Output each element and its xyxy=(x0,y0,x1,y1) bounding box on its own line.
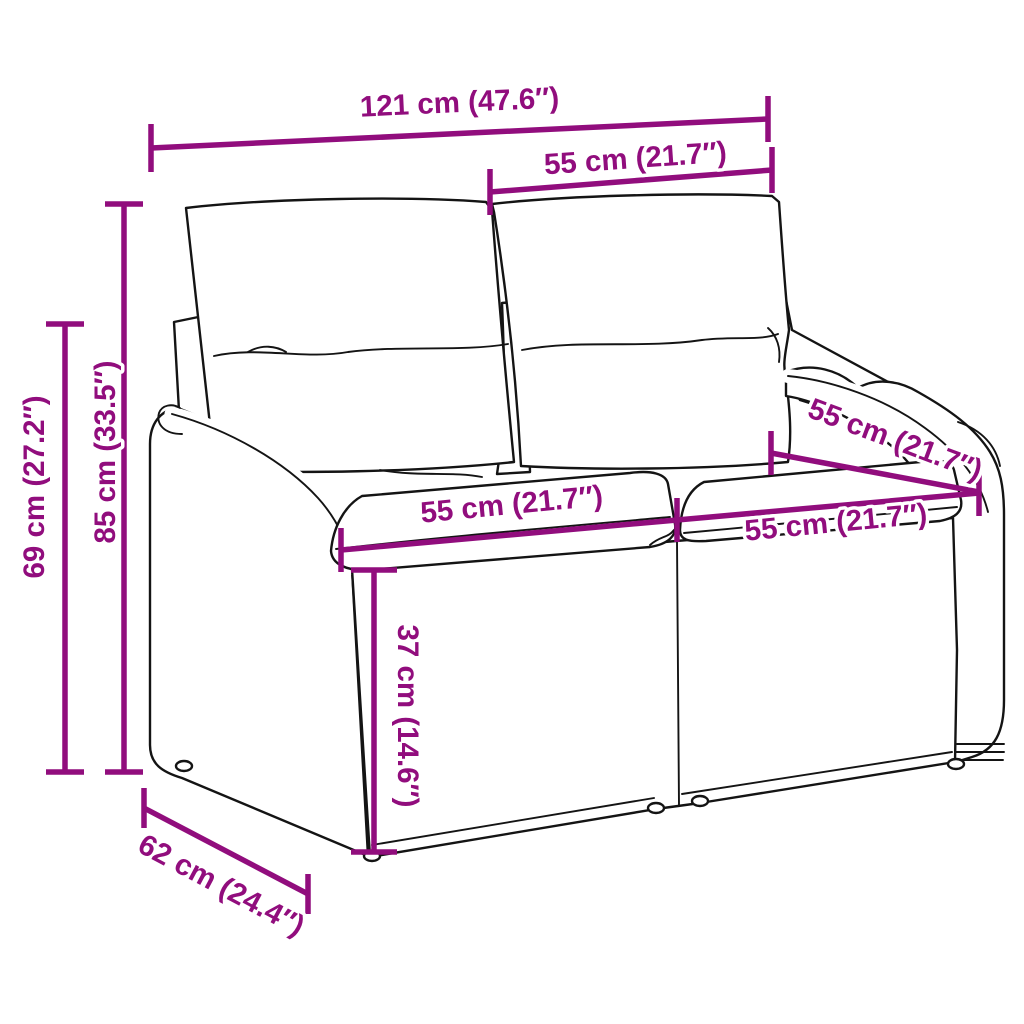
left-arm xyxy=(150,408,368,856)
dimension-diagram: 121 cm (47.6″) 55 cm (21.7″) 85 cm (33.5… xyxy=(0,0,1024,1024)
foot-mid-a xyxy=(648,803,664,813)
foot-left xyxy=(176,761,192,771)
foot-mid-b xyxy=(692,796,708,806)
back-cushion-right xyxy=(492,194,790,468)
dim-label-seat-height: 37 cm (14.6″) xyxy=(391,624,424,807)
bench-diagram-svg: 121 cm (47.6″) 55 cm (21.7″) 85 cm (33.5… xyxy=(0,0,1024,1024)
foot-right xyxy=(948,759,964,769)
dim-label-total-height: 85 cm (33.5″) xyxy=(89,360,122,543)
dim-label-total-width: 121 cm (47.6″) xyxy=(359,81,560,123)
dim-label-base-depth: 62 cm (24.4″) xyxy=(133,828,310,943)
dim-label-arm-height: 69 cm (27.2″) xyxy=(18,395,51,578)
